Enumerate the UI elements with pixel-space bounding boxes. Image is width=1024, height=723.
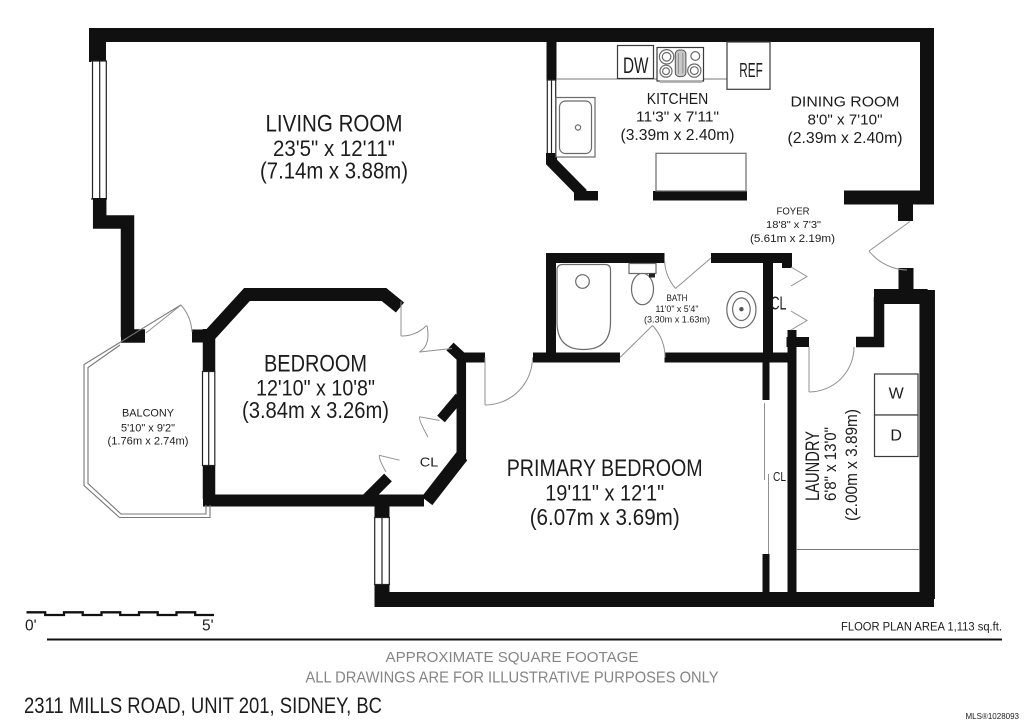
svg-text:BALCONY: BALCONY: [122, 408, 175, 420]
svg-text:DINING ROOM: DINING ROOM: [791, 94, 900, 111]
svg-text:11'3" x 7'11": 11'3" x 7'11": [636, 109, 719, 126]
svg-text:PRIMARY BEDROOM: PRIMARY BEDROOM: [507, 455, 703, 482]
svg-text:(3.84m x 3.26m): (3.84m x 3.26m): [242, 397, 389, 423]
svg-text:CL: CL: [420, 456, 439, 470]
svg-text:CL: CL: [771, 294, 787, 314]
svg-text:BATH: BATH: [667, 293, 688, 303]
svg-text:W: W: [889, 386, 905, 403]
svg-text:18'8" x 7'3": 18'8" x 7'3": [766, 219, 821, 231]
svg-text:(1.76m x 2.74m): (1.76m x 2.74m): [108, 436, 189, 448]
svg-text:ALL DRAWINGS ARE FOR ILLUSTRAT: ALL DRAWINGS ARE FOR ILLUSTRATIVE PURPOS…: [306, 670, 719, 687]
svg-text:11'0" x 5'4": 11'0" x 5'4": [656, 304, 699, 314]
svg-text:KITCHEN: KITCHEN: [647, 91, 709, 108]
svg-text:6'8" x 13'0": 6'8" x 13'0": [822, 427, 840, 501]
svg-text:FOYER: FOYER: [777, 206, 810, 218]
svg-text:5': 5': [202, 618, 214, 635]
svg-text:D: D: [890, 428, 902, 445]
svg-text:(2.39m x 2.40m): (2.39m x 2.40m): [788, 130, 903, 147]
svg-text:MLS®1028093: MLS®1028093: [966, 712, 1020, 721]
svg-text:APPROXIMATE SQUARE FOOTAGE: APPROXIMATE SQUARE FOOTAGE: [386, 649, 639, 666]
svg-text:19'11" x 12'1": 19'11" x 12'1": [545, 481, 664, 506]
svg-text:BEDROOM: BEDROOM: [264, 351, 367, 378]
svg-text:(7.14m x 3.88m): (7.14m x 3.88m): [260, 158, 408, 184]
svg-text:2311 MILLS ROAD, UNIT 201, SID: 2311 MILLS ROAD, UNIT 201, SIDNEY, BC: [24, 693, 382, 718]
svg-text:REF: REF: [739, 60, 763, 82]
svg-text:LIVING ROOM: LIVING ROOM: [266, 111, 403, 138]
svg-text:8'0" x 7'10": 8'0" x 7'10": [808, 112, 883, 129]
svg-text:(6.07m x 3.69m): (6.07m x 3.69m): [530, 504, 680, 530]
svg-text:LAUNDRY: LAUNDRY: [803, 431, 824, 501]
svg-text:(2.00m x 3.89m): (2.00m x 3.89m): [843, 409, 861, 521]
svg-text:(3.30m x 1.63m): (3.30m x 1.63m): [644, 315, 710, 326]
svg-text:0': 0': [25, 618, 37, 635]
svg-text:5'10" x 9'2": 5'10" x 9'2": [121, 423, 175, 435]
svg-text:DW: DW: [623, 53, 649, 78]
svg-text:(3.39m x 2.40m): (3.39m x 2.40m): [621, 127, 735, 144]
svg-text:CL: CL: [773, 470, 786, 484]
svg-text:FLOOR PLAN AREA 1,113 sq.ft.: FLOOR PLAN AREA 1,113 sq.ft.: [841, 622, 1002, 634]
svg-text:(5.61m x 2.19m): (5.61m x 2.19m): [750, 233, 835, 245]
